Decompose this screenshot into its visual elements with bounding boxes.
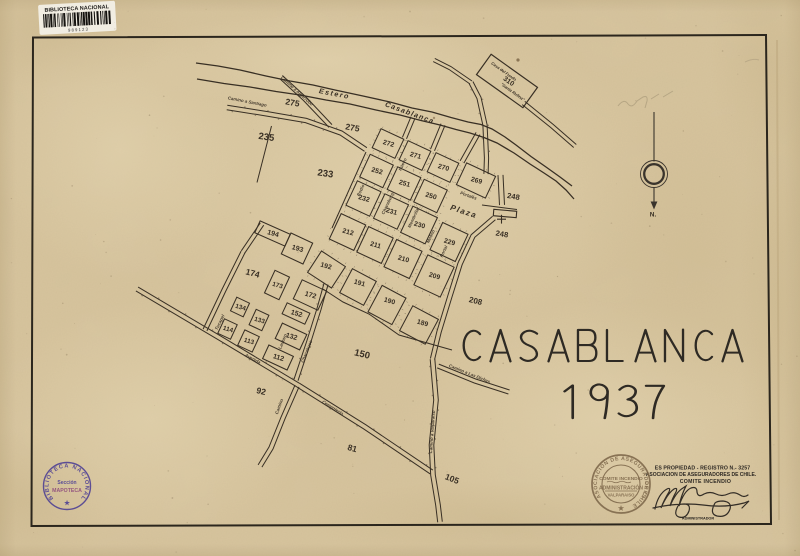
svg-text:Sección: Sección [57, 480, 76, 486]
svg-text:ADMINISTRACIÓN: ADMINISTRACIÓN [599, 484, 643, 492]
svg-text:COMITE INCENDIO: COMITE INCENDIO [680, 479, 731, 485]
svg-text:235: 235 [258, 131, 276, 144]
svg-text:233: 233 [317, 167, 334, 180]
svg-text:VALPARAISO: VALPARAISO [608, 493, 636, 498]
svg-text:ADMINISTRADOR: ADMINISTRADOR [682, 517, 715, 521]
svg-text:N.: N. [650, 212, 657, 219]
svg-text:ES PROPIEDAD - REGISTRO N.- 32: ES PROPIEDAD - REGISTRO N.- 3257 [655, 465, 750, 471]
svg-text:★: ★ [618, 505, 625, 513]
svg-text:MAPOTECA: MAPOTECA [52, 488, 82, 494]
svg-text:ASOCIACION DE ASEGURADORES DE: ASOCIACION DE ASEGURADORES DE CHILE. [646, 472, 757, 478]
